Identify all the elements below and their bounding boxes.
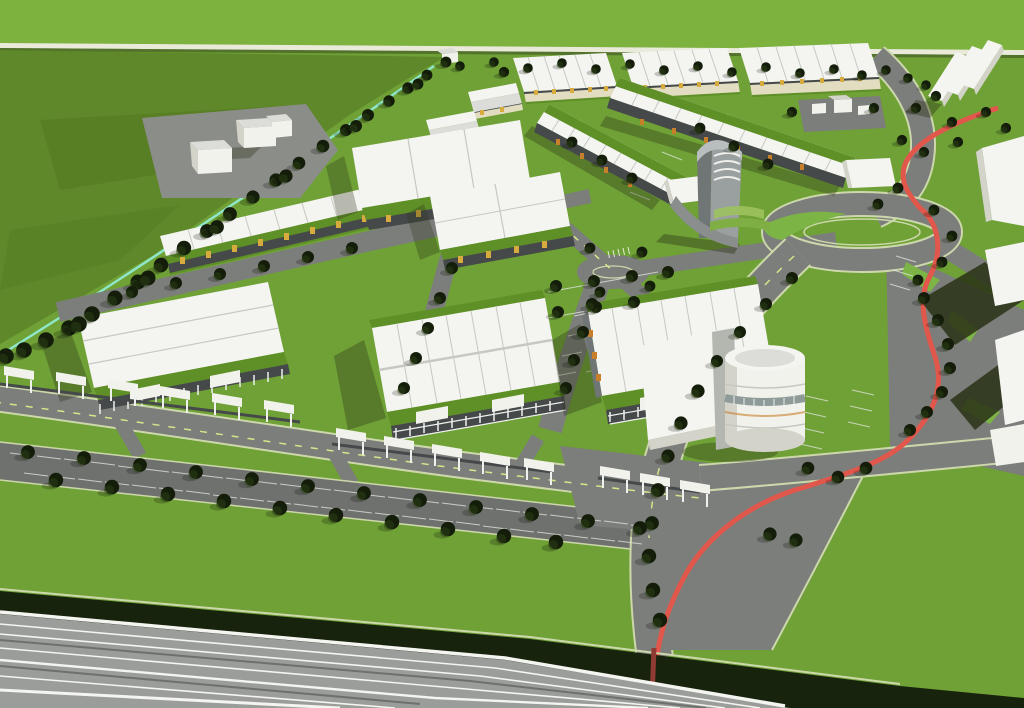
- site-plan-render: Aerial 3D architectural rendering of a b…: [0, 0, 1024, 708]
- rotunda-complex: [640, 328, 805, 462]
- aerial-render-canvas: Aerial 3D architectural rendering of a b…: [0, 0, 1024, 708]
- far-field: [0, 0, 1024, 50]
